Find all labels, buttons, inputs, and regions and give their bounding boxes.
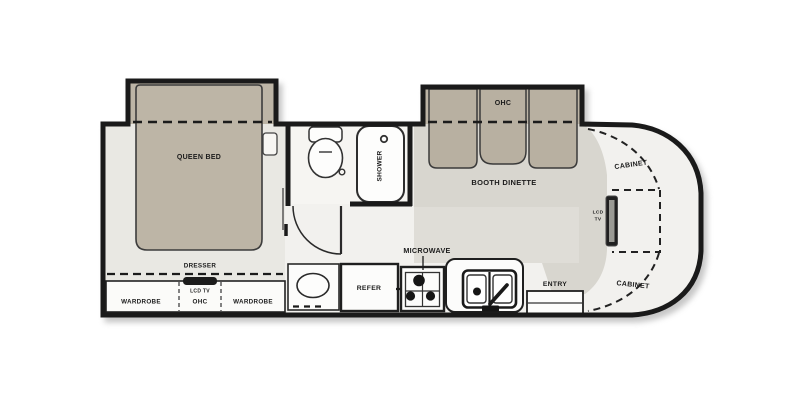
dresser-label: DRESSER [184, 263, 217, 270]
queen-bed-label: QUEEN BED [177, 154, 221, 161]
stove-burners-icon [401, 267, 444, 311]
lav-sink-cabinet [288, 264, 339, 310]
kitchen-sink-counter [446, 259, 523, 312]
toilet-icon [309, 127, 345, 178]
bedroom-tv-icon [183, 277, 217, 285]
dinette-ohc-label: OHC [495, 100, 511, 107]
entry-label: ENTRY [543, 281, 567, 288]
dinette-bench-right [529, 89, 577, 168]
rear-tv-label-line2: TV [595, 216, 602, 222]
lav-sink-icon [297, 274, 329, 298]
sink-drain-icon [473, 288, 481, 296]
shower-label: SHOWER [377, 150, 384, 181]
queen-bed [136, 85, 262, 250]
booth-dinette-label: BOOTH DINETTE [471, 178, 536, 187]
shower-stall: SHOWER [357, 126, 404, 202]
rear-tv-icon [606, 196, 618, 246]
lcd-tv-ohc-label-line2: OHC [193, 299, 208, 306]
nightstand [263, 133, 277, 155]
shower-drain-icon [381, 136, 387, 142]
lcd-tv-ohc-label-line1: LCD TV [190, 288, 210, 294]
microwave-label: MICROWAVE [403, 246, 450, 255]
refrigerator: REFER [341, 264, 398, 311]
rv-floorplan-screenshot: OHC QUEEN BED DRESSER WARDROBE LCD TV OH… [0, 0, 800, 400]
refer-label: REFER [357, 285, 382, 292]
entry-step [527, 291, 583, 314]
rear-tv-label-line1: LCD [593, 209, 604, 215]
wardrobe-right-label: WARDROBE [233, 299, 273, 306]
wardrobe-left-label: WARDROBE [121, 299, 161, 306]
dinette-bench-left [429, 89, 477, 168]
wardrobe-cabinet-row [106, 281, 285, 312]
